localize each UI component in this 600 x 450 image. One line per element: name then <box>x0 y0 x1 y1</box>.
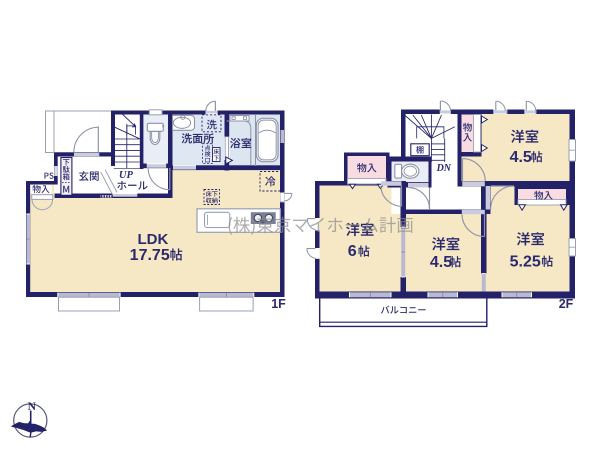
svg-text:2F: 2F <box>559 297 574 311</box>
svg-text:UP: UP <box>119 170 134 181</box>
svg-text:17.75: 17.75 <box>130 247 170 264</box>
svg-text:LDK: LDK <box>137 231 168 248</box>
svg-text:4.5: 4.5 <box>510 149 532 166</box>
svg-text:6: 6 <box>348 243 357 260</box>
svg-text:N: N <box>28 401 37 413</box>
svg-text:1F: 1F <box>271 297 286 311</box>
svg-text:4.5: 4.5 <box>430 254 452 271</box>
svg-text:DN: DN <box>436 163 452 174</box>
svg-text:5.25: 5.25 <box>510 253 541 270</box>
